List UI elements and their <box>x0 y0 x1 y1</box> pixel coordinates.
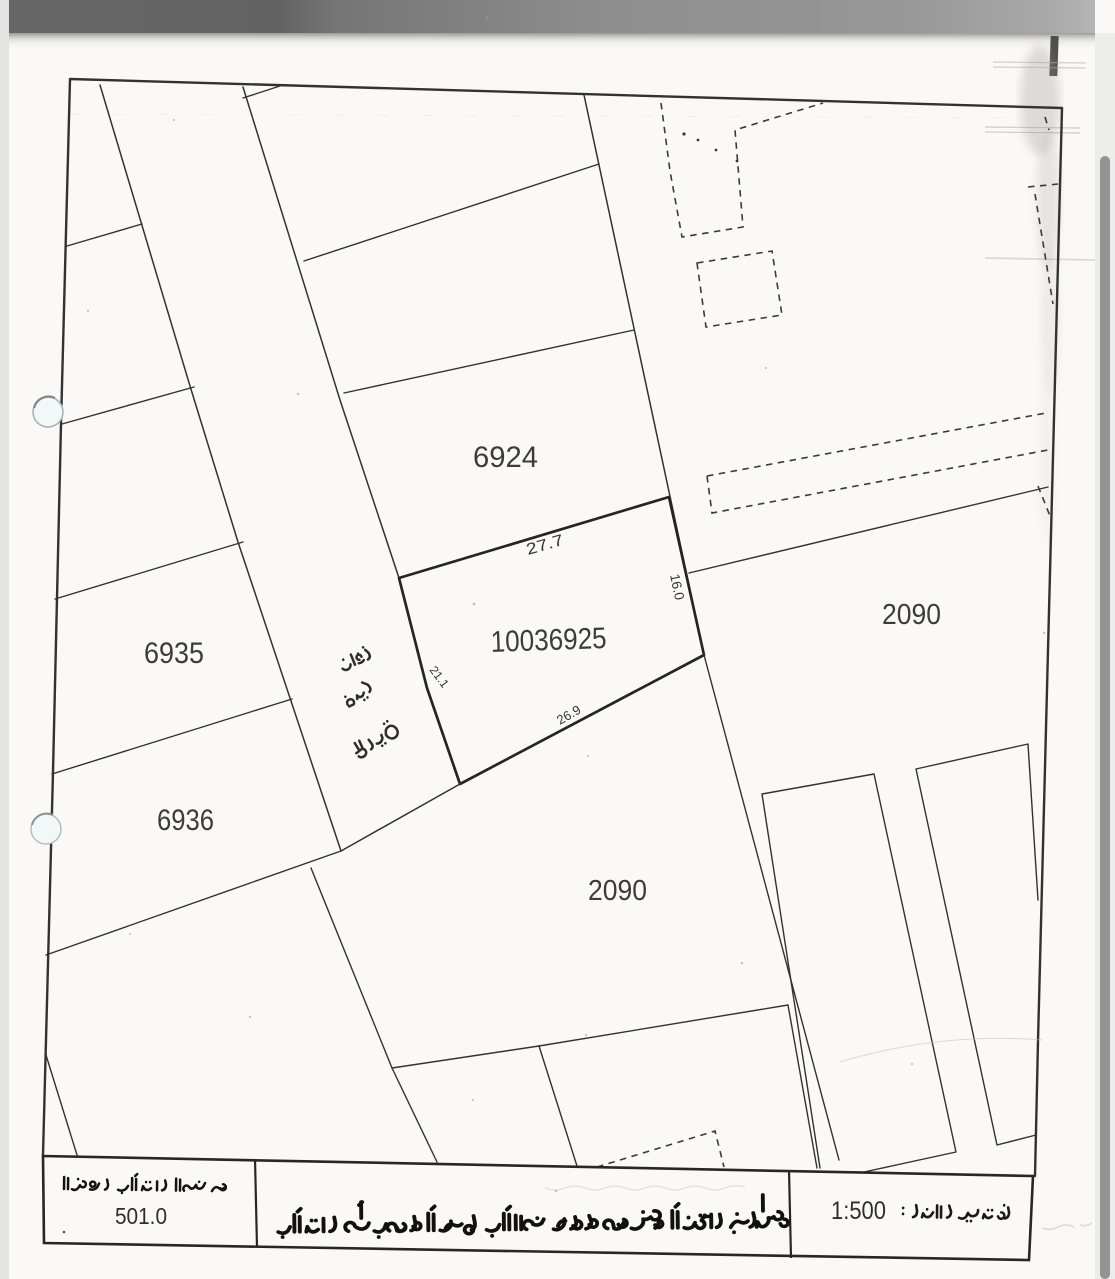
svg-text:6924: 6924 <box>473 441 538 474</box>
svg-text:501.0: 501.0 <box>115 1203 167 1229</box>
svg-text:6936: 6936 <box>157 804 214 837</box>
svg-text:2090: 2090 <box>882 599 941 631</box>
svg-text:2090: 2090 <box>588 875 647 907</box>
svg-text:6935: 6935 <box>144 637 204 670</box>
svg-text:10036925: 10036925 <box>490 622 607 659</box>
svg-text:1:500: 1:500 <box>831 1197 886 1225</box>
